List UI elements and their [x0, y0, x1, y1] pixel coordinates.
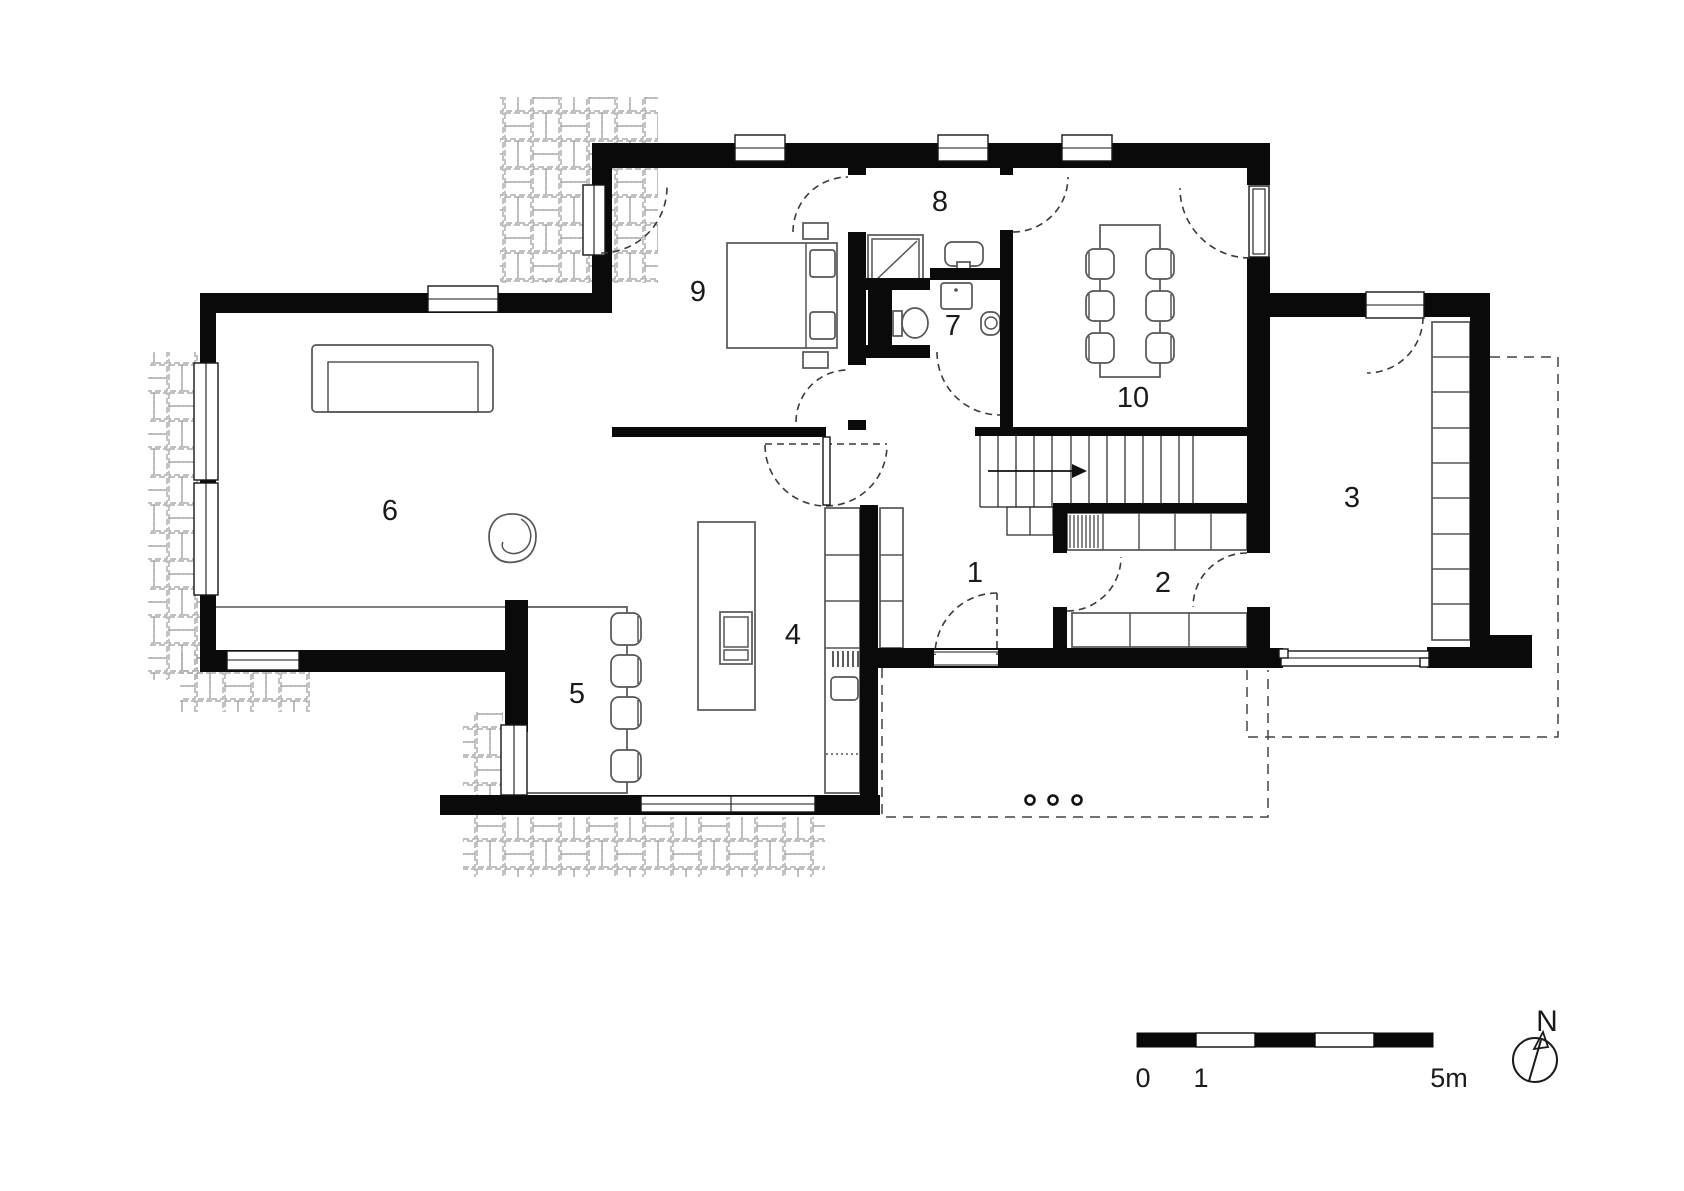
terrace-paving	[148, 97, 825, 877]
kitchen-counter	[825, 508, 860, 793]
walls	[200, 143, 1532, 815]
door-entrance	[935, 593, 997, 655]
window-bedroom-west	[583, 185, 605, 255]
garage-shelving	[1432, 322, 1470, 640]
room-label-8: 8	[932, 186, 948, 218]
nightstand	[803, 223, 828, 239]
door-garage-swing	[1367, 317, 1423, 373]
porch-columns	[1026, 796, 1082, 805]
paving-south	[463, 817, 825, 877]
door-dining-hall	[1013, 177, 1068, 232]
floor-plan-drawing: 1 2 3 4 5 6 7 8 9 10 0 1 5m N	[0, 0, 1684, 1191]
pillow	[810, 312, 835, 339]
window-north-1	[735, 135, 785, 161]
toilet-bowl	[902, 308, 928, 338]
oven	[831, 677, 858, 700]
sofa	[312, 345, 493, 412]
door-bedroom-hall	[796, 370, 848, 422]
living-room-furniture	[312, 345, 536, 562]
door-utility-west	[1067, 557, 1121, 611]
pillow	[810, 250, 835, 277]
room-label-4: 4	[785, 619, 801, 651]
door-garage-north	[1366, 292, 1424, 318]
scale-label-5m: 5m	[1430, 1063, 1468, 1093]
utility-counter-bottom	[1072, 613, 1247, 647]
sink-tap	[954, 288, 958, 292]
room-label-5: 5	[569, 678, 585, 710]
scale-label-0: 0	[1135, 1063, 1150, 1093]
island-sink	[720, 612, 752, 664]
nightstand	[803, 352, 828, 368]
window-kitchen-south	[641, 796, 815, 812]
room-label-1: 1	[967, 557, 983, 589]
armchair	[489, 514, 536, 562]
window-living-north	[428, 286, 498, 312]
window-living-west-2	[194, 483, 218, 595]
stair-arrow-head	[1072, 464, 1087, 478]
sink	[941, 283, 972, 309]
dining-room-furniture	[1086, 225, 1174, 377]
room-label-6: 6	[382, 495, 398, 527]
room-label-3: 3	[1344, 482, 1360, 514]
window-north-3	[1062, 135, 1112, 161]
floor-plan-sheet: 1 2 3 4 5 6 7 8 9 10 0 1 5m N	[0, 0, 1684, 1191]
shelf-column	[1432, 322, 1470, 640]
window-garage-south	[1279, 649, 1429, 667]
room-label-9: 9	[690, 276, 706, 308]
window-living-south	[227, 651, 299, 670]
north-label: N	[1536, 1005, 1558, 1038]
room-label-10: 10	[1117, 382, 1149, 414]
toilet-tank	[893, 311, 902, 336]
nook-chairs	[611, 613, 641, 782]
door-wc-hall	[937, 352, 1000, 415]
north-arrow: N	[1513, 1005, 1558, 1082]
door-utility-east	[1193, 553, 1247, 607]
hall-cabinet	[880, 508, 903, 648]
door-dining-east-leaf	[1249, 186, 1269, 257]
paving-north-west	[500, 97, 658, 283]
room-label-7: 7	[945, 310, 961, 342]
roof-overhang-east	[1247, 357, 1558, 737]
window-nook-west	[501, 725, 527, 795]
window-north-2	[938, 135, 988, 161]
bedroom-furniture	[727, 223, 837, 368]
scale-bar: 0 1 5m	[1135, 1033, 1467, 1093]
scale-label-1: 1	[1193, 1063, 1208, 1093]
door-living-double-swing	[765, 437, 887, 506]
window-living-west-1	[194, 363, 218, 480]
room-label-2: 2	[1155, 567, 1171, 599]
door-dining-east-swing	[1180, 188, 1250, 258]
